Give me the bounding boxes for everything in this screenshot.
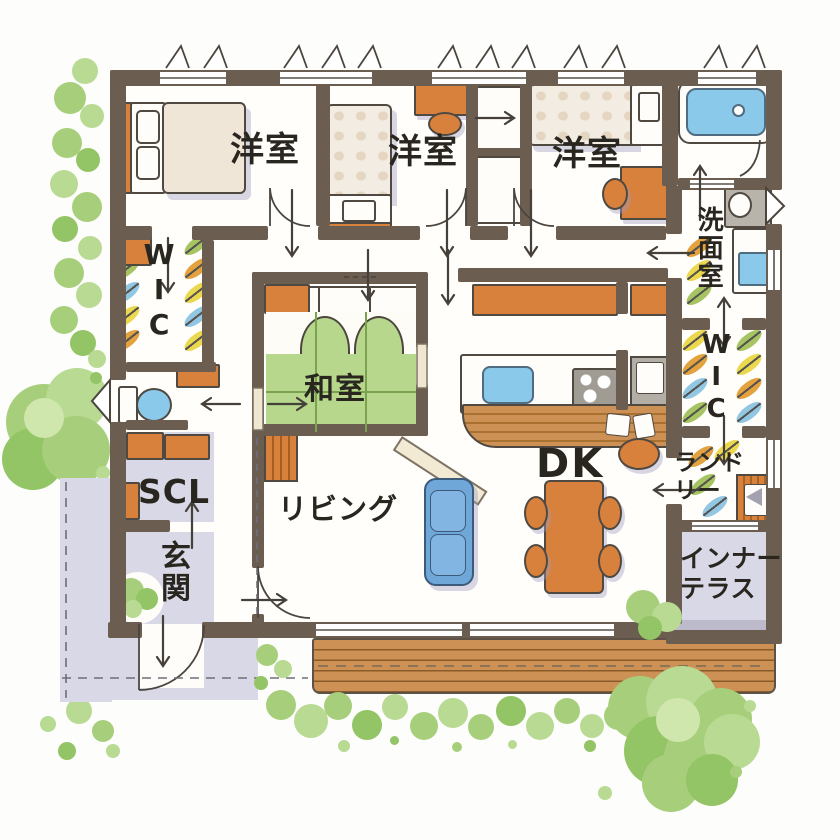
kitchen-cabinet: [472, 284, 618, 316]
inner-terrace-step: [672, 620, 766, 634]
sofa-cushion: [430, 490, 466, 532]
foliage-blob: [468, 714, 494, 740]
single-bed-foot-panel: [638, 92, 660, 122]
dining-chair: [524, 544, 548, 578]
foliage-blob: [390, 736, 399, 745]
foliage-blob: [76, 148, 100, 172]
room-label-washroom: 洗面室: [692, 206, 723, 326]
foliage-blob: [92, 720, 114, 742]
closet: [468, 156, 528, 224]
vanity-sink: [738, 252, 776, 286]
foliage-blob: [744, 700, 756, 712]
foliage-blob: [294, 704, 328, 738]
foliage-blob: [686, 754, 738, 806]
foliage-blob: [410, 712, 438, 740]
foliage-blob: [642, 754, 700, 812]
books-on-counter: [605, 413, 631, 437]
room-label-bedroom-top-mid: 洋室: [388, 132, 458, 173]
foliage-blob: [584, 740, 596, 752]
tv-board: [264, 434, 298, 482]
foliage-blob: [40, 716, 56, 732]
foliage-blob: [76, 282, 102, 308]
sofa-cushion: [430, 534, 466, 576]
foliage-blob: [106, 744, 120, 758]
pillow: [136, 146, 160, 180]
foliage-blob: [324, 692, 352, 720]
toilet-bowl: [136, 388, 172, 422]
foliage-blob: [52, 216, 78, 242]
wood-deck: [312, 638, 776, 694]
foliage-blob: [78, 236, 102, 260]
foliage-blob: [50, 306, 78, 334]
foliage-blob: [382, 694, 408, 720]
foliage-blob: [526, 712, 554, 740]
room-label-inner-terrace: インナーテラス: [680, 544, 782, 604]
foliage-blob: [664, 720, 740, 796]
foliage-blob: [90, 372, 102, 384]
counter-stool: [618, 438, 660, 470]
room-label-living: リビング: [278, 492, 398, 527]
foliage-blob: [690, 688, 752, 750]
room-label-bedroom-top-left: 洋室: [230, 130, 300, 171]
shoe-shelf: [126, 432, 164, 460]
kitchen-stove: [572, 368, 618, 408]
foliage-blob: [274, 660, 292, 678]
toilet-tank: [118, 386, 138, 424]
room-label-laundry: ランドリー: [674, 450, 762, 505]
foliage-blob: [438, 698, 468, 728]
room-label-japanese-room: 和室: [304, 372, 366, 408]
foliage-blob: [72, 192, 102, 222]
foliage-blob: [580, 714, 604, 738]
japanese-room-closet: [264, 284, 310, 314]
foliage-blob: [256, 644, 278, 666]
washing-machine-drum: [728, 192, 752, 218]
entrance-door-swing-area: [138, 624, 204, 688]
foliage-blob: [24, 398, 64, 438]
foliage-blob: [730, 766, 742, 778]
foliage-blob: [496, 696, 526, 726]
foliage-blob: [624, 716, 694, 786]
shoe-shelf: [164, 434, 210, 460]
room-label-wic-right: WIC: [700, 330, 731, 440]
tablet-on-counter: [632, 412, 656, 439]
dining-chair: [524, 496, 548, 530]
foliage-blob: [50, 170, 78, 198]
room-label-bedroom-top-right: 洋室: [552, 134, 622, 175]
foliage-blob: [598, 786, 612, 800]
single-bed-mattress: [326, 104, 392, 200]
foliage-blob: [508, 740, 517, 749]
foliage-blob: [72, 58, 98, 84]
dining-chair: [598, 496, 622, 530]
foliage-blob: [54, 258, 84, 288]
bed-foot-shelf: [326, 222, 392, 233]
closet: [468, 86, 528, 150]
foliage-blob: [704, 714, 760, 770]
foliage-blob: [338, 740, 350, 752]
dining-table: [544, 480, 604, 594]
kitchen-sink: [482, 366, 534, 404]
single-bed-foot-panel: [342, 200, 376, 222]
foliage-blob: [554, 698, 580, 724]
floor-plan: 洋室 洋室 洋室 WIC 洗面室 WIC 和室 リビング DK SCL 玄関 ラ…: [0, 0, 840, 840]
bathtub-water: [686, 88, 766, 136]
room-label-dk: DK: [536, 440, 604, 488]
bathtub-drain: [732, 104, 745, 117]
dining-chair: [598, 544, 622, 578]
desk-chair: [602, 178, 628, 210]
foliage-blob: [604, 702, 632, 730]
foliage-blob: [352, 710, 382, 740]
refrigerator-door: [636, 362, 664, 394]
kitchen-cabinet: [630, 284, 670, 316]
room-label-wic-left: WIC: [142, 238, 176, 368]
entry-plant: [124, 600, 142, 618]
wic-counter: [176, 364, 220, 388]
foliage-blob: [88, 350, 106, 368]
foliage-blob: [266, 690, 296, 720]
room-label-scl: SCL: [138, 472, 210, 512]
pillow: [136, 110, 160, 144]
foliage-blob: [452, 742, 462, 752]
room-label-entrance: 玄関: [154, 540, 190, 624]
foliage-blob: [80, 104, 104, 128]
foliage-blob: [656, 698, 700, 742]
foliage-blob: [58, 742, 76, 760]
